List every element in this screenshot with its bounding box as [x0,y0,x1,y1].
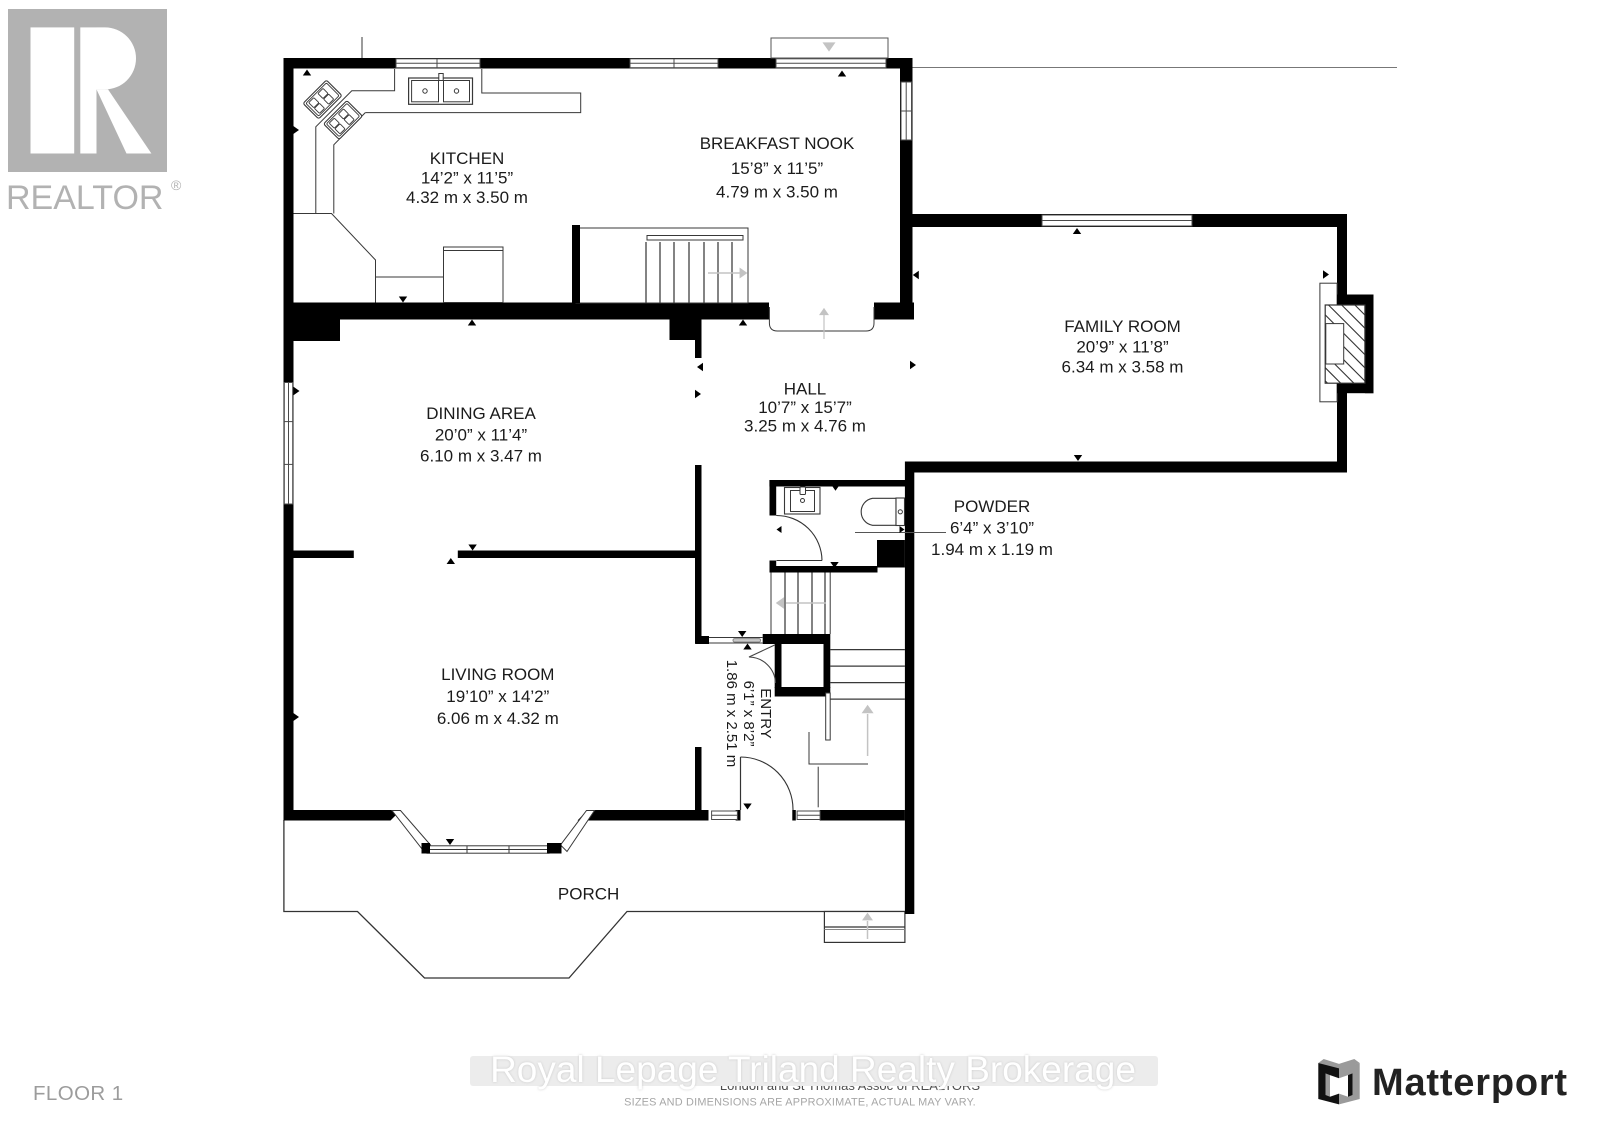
svg-text:BREAKFAST NOOK: BREAKFAST NOOK [700,134,855,153]
svg-text:14’2” x 11’5”: 14’2” x 11’5” [421,169,514,188]
svg-text:4.79 m x 3.50 m: 4.79 m x 3.50 m [716,183,838,202]
svg-text:Royal Lepage Triland Realty Br: Royal Lepage Triland Realty Brokerage [490,1049,1136,1090]
svg-text:1.86 m x 2.51 m: 1.86 m x 2.51 m [723,660,740,768]
svg-text:3.25 m x 4.76 m: 3.25 m x 4.76 m [744,417,866,436]
svg-text:6.34 m x 3.58 m: 6.34 m x 3.58 m [1062,358,1184,377]
svg-text:4.32 m x 3.50 m: 4.32 m x 3.50 m [406,188,528,207]
svg-text:15’8” x 11’5”: 15’8” x 11’5” [731,159,824,178]
svg-text:LIVING ROOM: LIVING ROOM [441,665,554,684]
svg-text:SIZES AND DIMENSIONS ARE APPRO: SIZES AND DIMENSIONS ARE APPROXIMATE, AC… [624,1097,976,1109]
svg-text:19’10” x 14’2”: 19’10” x 14’2” [446,687,549,706]
svg-text:6’4” x 3’10”: 6’4” x 3’10” [950,519,1034,538]
svg-text:Matterport: Matterport [1372,1062,1568,1104]
svg-text:®: ® [171,177,182,193]
svg-text:PORCH: PORCH [558,885,619,904]
svg-text:FLOOR 1: FLOOR 1 [33,1082,124,1105]
svg-text:KITCHEN: KITCHEN [430,149,505,168]
svg-text:20’0” x 11’4”: 20’0” x 11’4” [435,425,528,444]
svg-text:6’1” x 8’2”: 6’1” x 8’2” [740,681,757,747]
svg-text:6.06 m x 4.32 m: 6.06 m x 4.32 m [437,709,559,728]
svg-text:20’9” x 11’8”: 20’9” x 11’8” [1076,338,1169,357]
svg-text:6.10 m x 3.47 m: 6.10 m x 3.47 m [420,447,542,466]
svg-text:POWDER: POWDER [954,497,1031,516]
svg-text:ENTRY: ENTRY [757,688,774,739]
svg-text:1.94 m x 1.19 m: 1.94 m x 1.19 m [931,540,1053,559]
svg-text:HALL: HALL [784,380,827,399]
svg-text:FAMILY ROOM: FAMILY ROOM [1064,317,1181,336]
svg-text:10’7” x 15’7”: 10’7” x 15’7” [758,398,852,417]
svg-text:REALTOR: REALTOR [6,179,163,217]
svg-text:DINING AREA: DINING AREA [426,404,536,423]
